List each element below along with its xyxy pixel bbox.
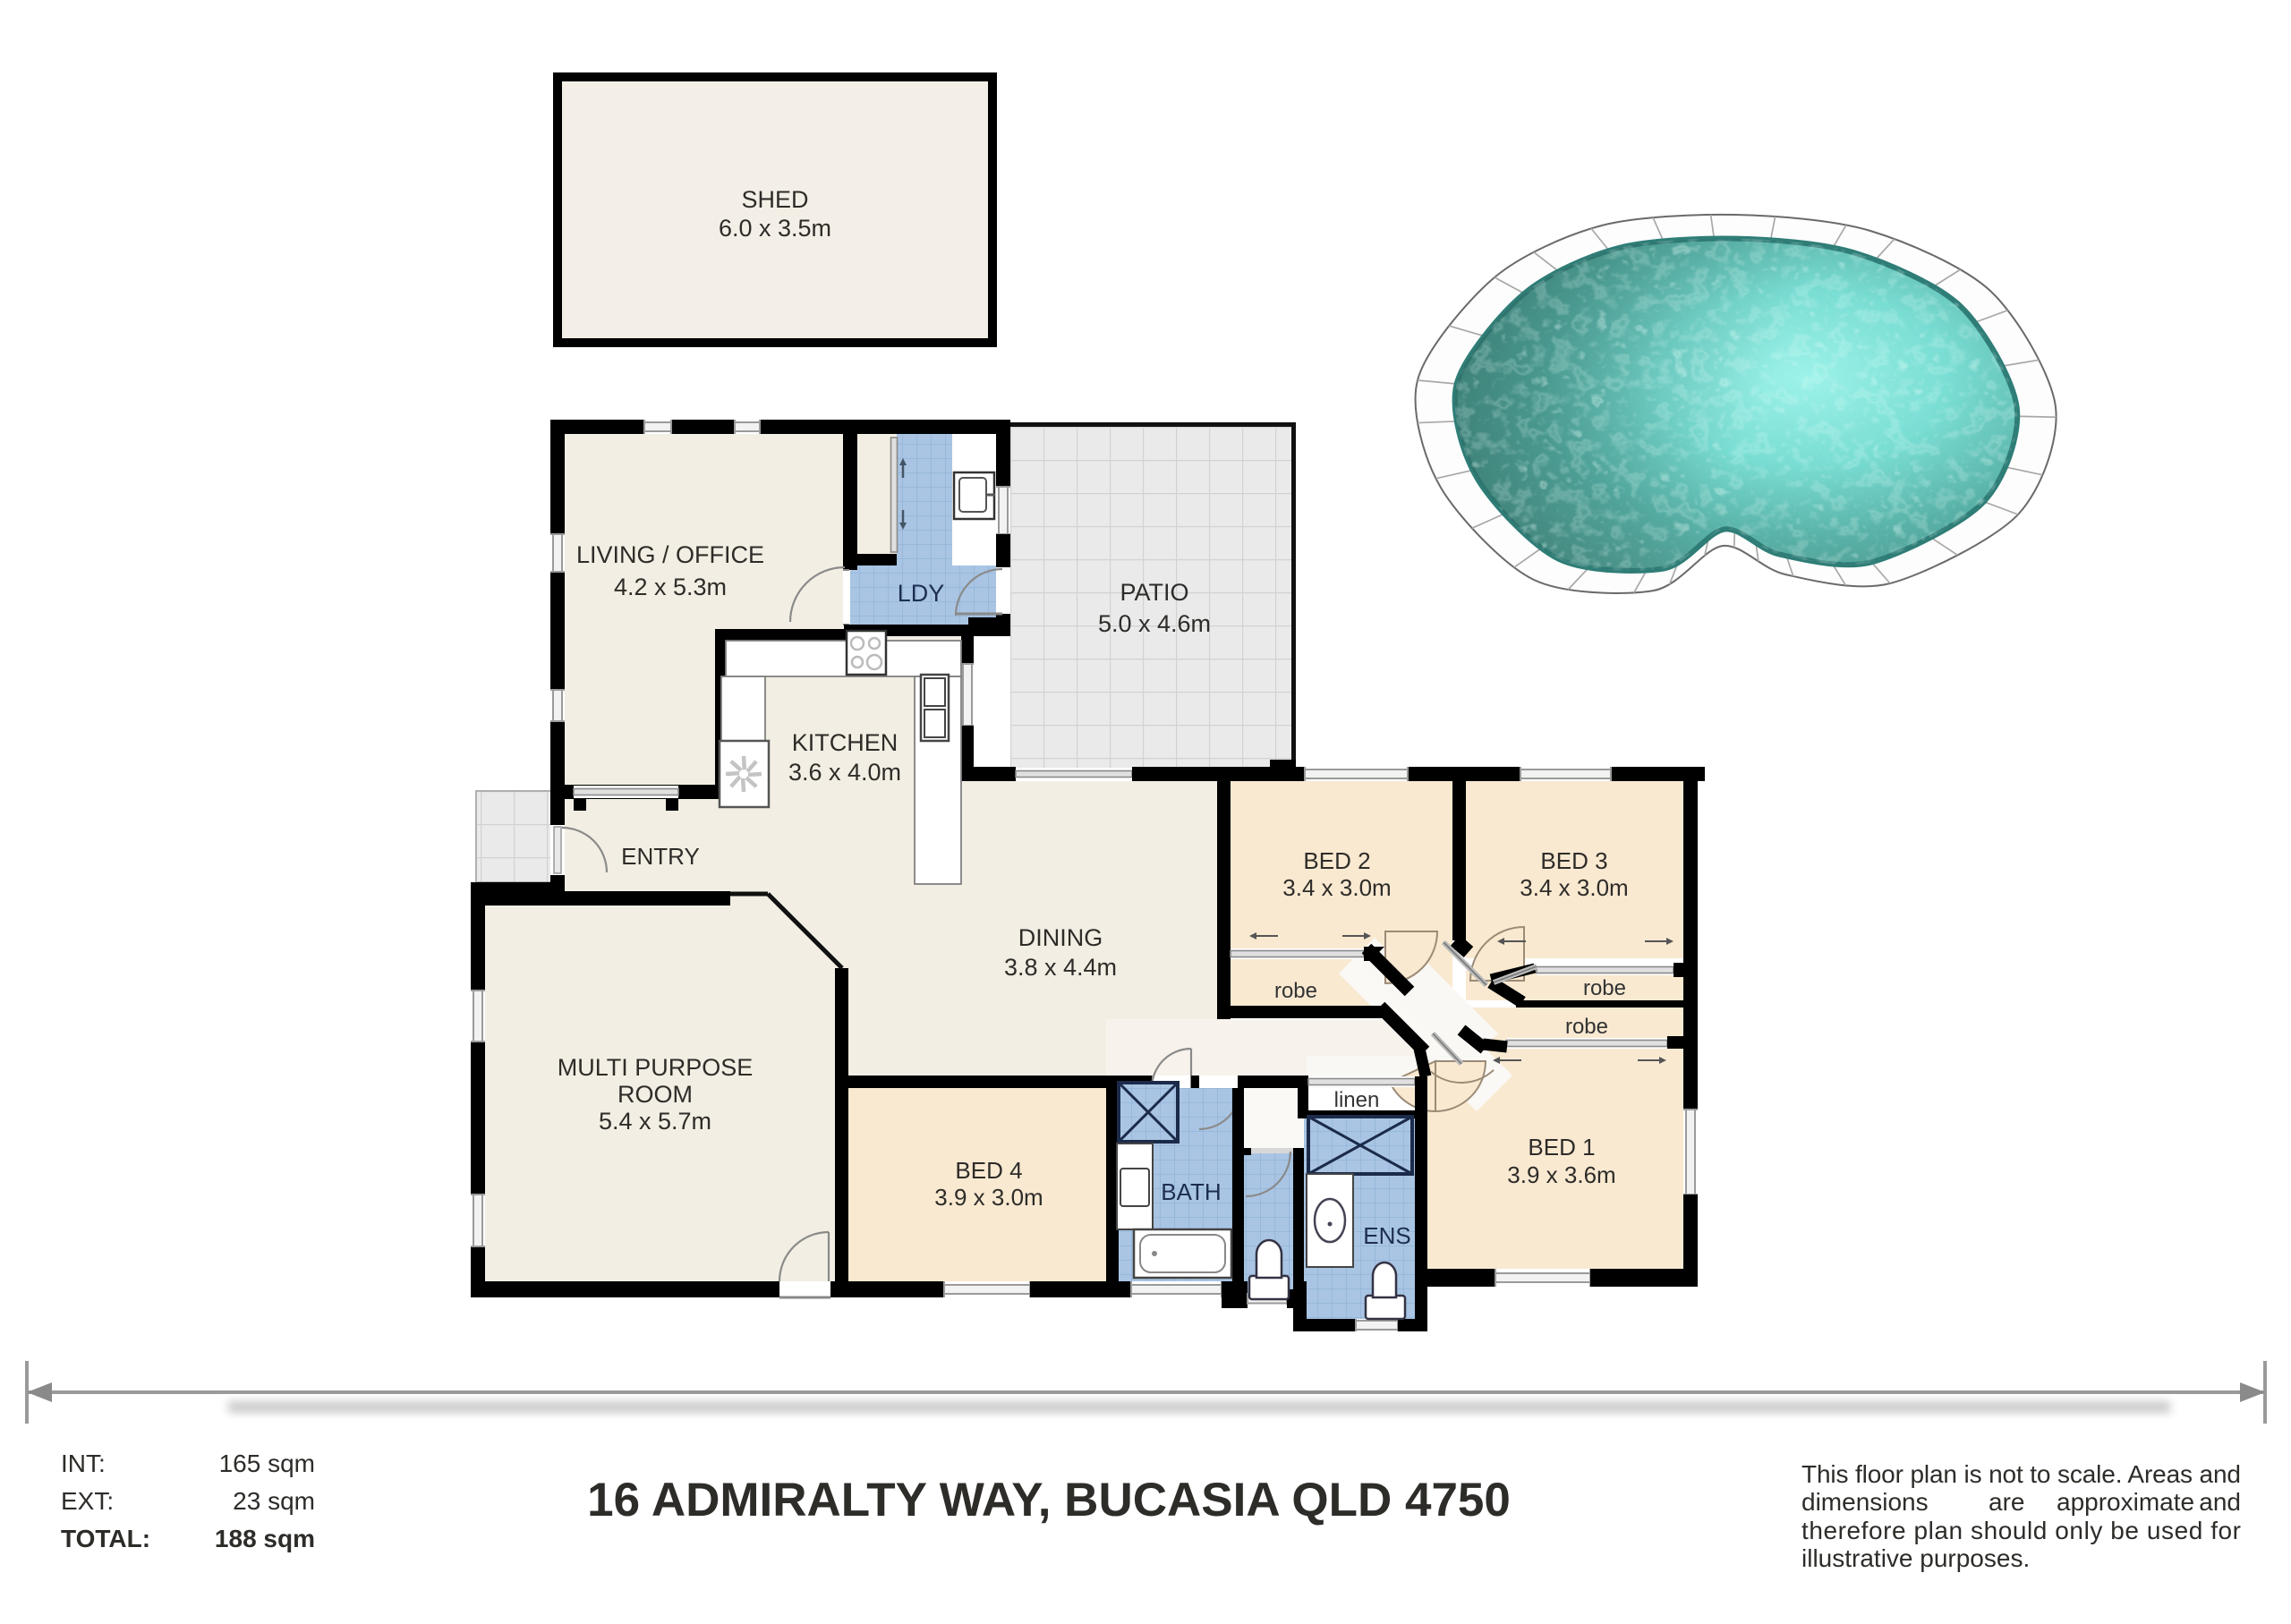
svg-text:and: and: [2199, 1488, 2241, 1516]
svg-text:3.6 x 4.0m: 3.6 x 4.0m: [788, 759, 901, 786]
svg-text:robe: robe: [1274, 979, 1317, 1003]
svg-text:LDY: LDY: [898, 580, 945, 607]
svg-text:illustrative purposes.: illustrative purposes.: [1801, 1544, 2030, 1572]
svg-text:BED 1: BED 1: [1528, 1134, 1595, 1161]
svg-text:3.9 x 3.6m: 3.9 x 3.6m: [1507, 1161, 1615, 1188]
svg-text:5.4 x 5.7m: 5.4 x 5.7m: [599, 1108, 711, 1135]
svg-text:ENS: ENS: [1363, 1222, 1410, 1249]
svg-text:dimensions: dimensions: [1801, 1488, 1929, 1516]
svg-text:16 ADMIRALTY WAY, BUCASIA QLD: 16 ADMIRALTY WAY, BUCASIA QLD 4750: [587, 1474, 1511, 1526]
svg-text:3.4 x 3.0m: 3.4 x 3.0m: [1282, 874, 1391, 901]
svg-text:linen: linen: [1334, 1088, 1380, 1112]
svg-text:3.4 x 3.0m: 3.4 x 3.0m: [1520, 874, 1628, 901]
svg-text:approximate: approximate: [2057, 1488, 2194, 1516]
svg-text:BED 3: BED 3: [1540, 847, 1607, 874]
svg-text:3.8 x 4.4m: 3.8 x 4.4m: [1004, 954, 1117, 981]
svg-text:DINING: DINING: [1018, 924, 1103, 951]
svg-text:165 sqm: 165 sqm: [219, 1450, 315, 1477]
svg-text:BED 2: BED 2: [1303, 847, 1370, 874]
svg-text:robe: robe: [1565, 1015, 1608, 1039]
svg-text:ROOM: ROOM: [617, 1081, 693, 1108]
svg-text:LIVING / OFFICE: LIVING / OFFICE: [576, 541, 764, 568]
svg-text:robe: robe: [1583, 976, 1626, 1000]
svg-text:MULTI PURPOSE: MULTI PURPOSE: [558, 1054, 754, 1081]
svg-text:23 sqm: 23 sqm: [233, 1487, 315, 1515]
svg-text:This floor plan is not to scal: This floor plan is not to scale. Areas a…: [1801, 1460, 2241, 1488]
svg-text:188 sqm: 188 sqm: [215, 1525, 315, 1552]
svg-text:ENTRY: ENTRY: [621, 843, 700, 870]
svg-text:SHED: SHED: [741, 186, 808, 213]
svg-text:BED 4: BED 4: [955, 1157, 1022, 1184]
svg-text:BATH: BATH: [1161, 1178, 1221, 1205]
svg-text:TOTAL:: TOTAL:: [61, 1525, 150, 1552]
svg-text:INT:: INT:: [61, 1450, 106, 1477]
svg-text:PATIO: PATIO: [1120, 579, 1188, 606]
svg-text:EXT:: EXT:: [61, 1487, 114, 1515]
svg-text:are: are: [1989, 1488, 2024, 1516]
svg-text:5.0 x 4.6m: 5.0 x 4.6m: [1098, 610, 1211, 637]
svg-text:3.9 x 3.0m: 3.9 x 3.0m: [934, 1184, 1043, 1211]
svg-text:6.0 x 3.5m: 6.0 x 3.5m: [719, 215, 831, 242]
svg-text:KITCHEN: KITCHEN: [792, 729, 899, 756]
svg-text:4.2 x 5.3m: 4.2 x 5.3m: [614, 574, 727, 600]
svg-text:therefore plan should only be: therefore plan should only be used for: [1801, 1517, 2241, 1544]
